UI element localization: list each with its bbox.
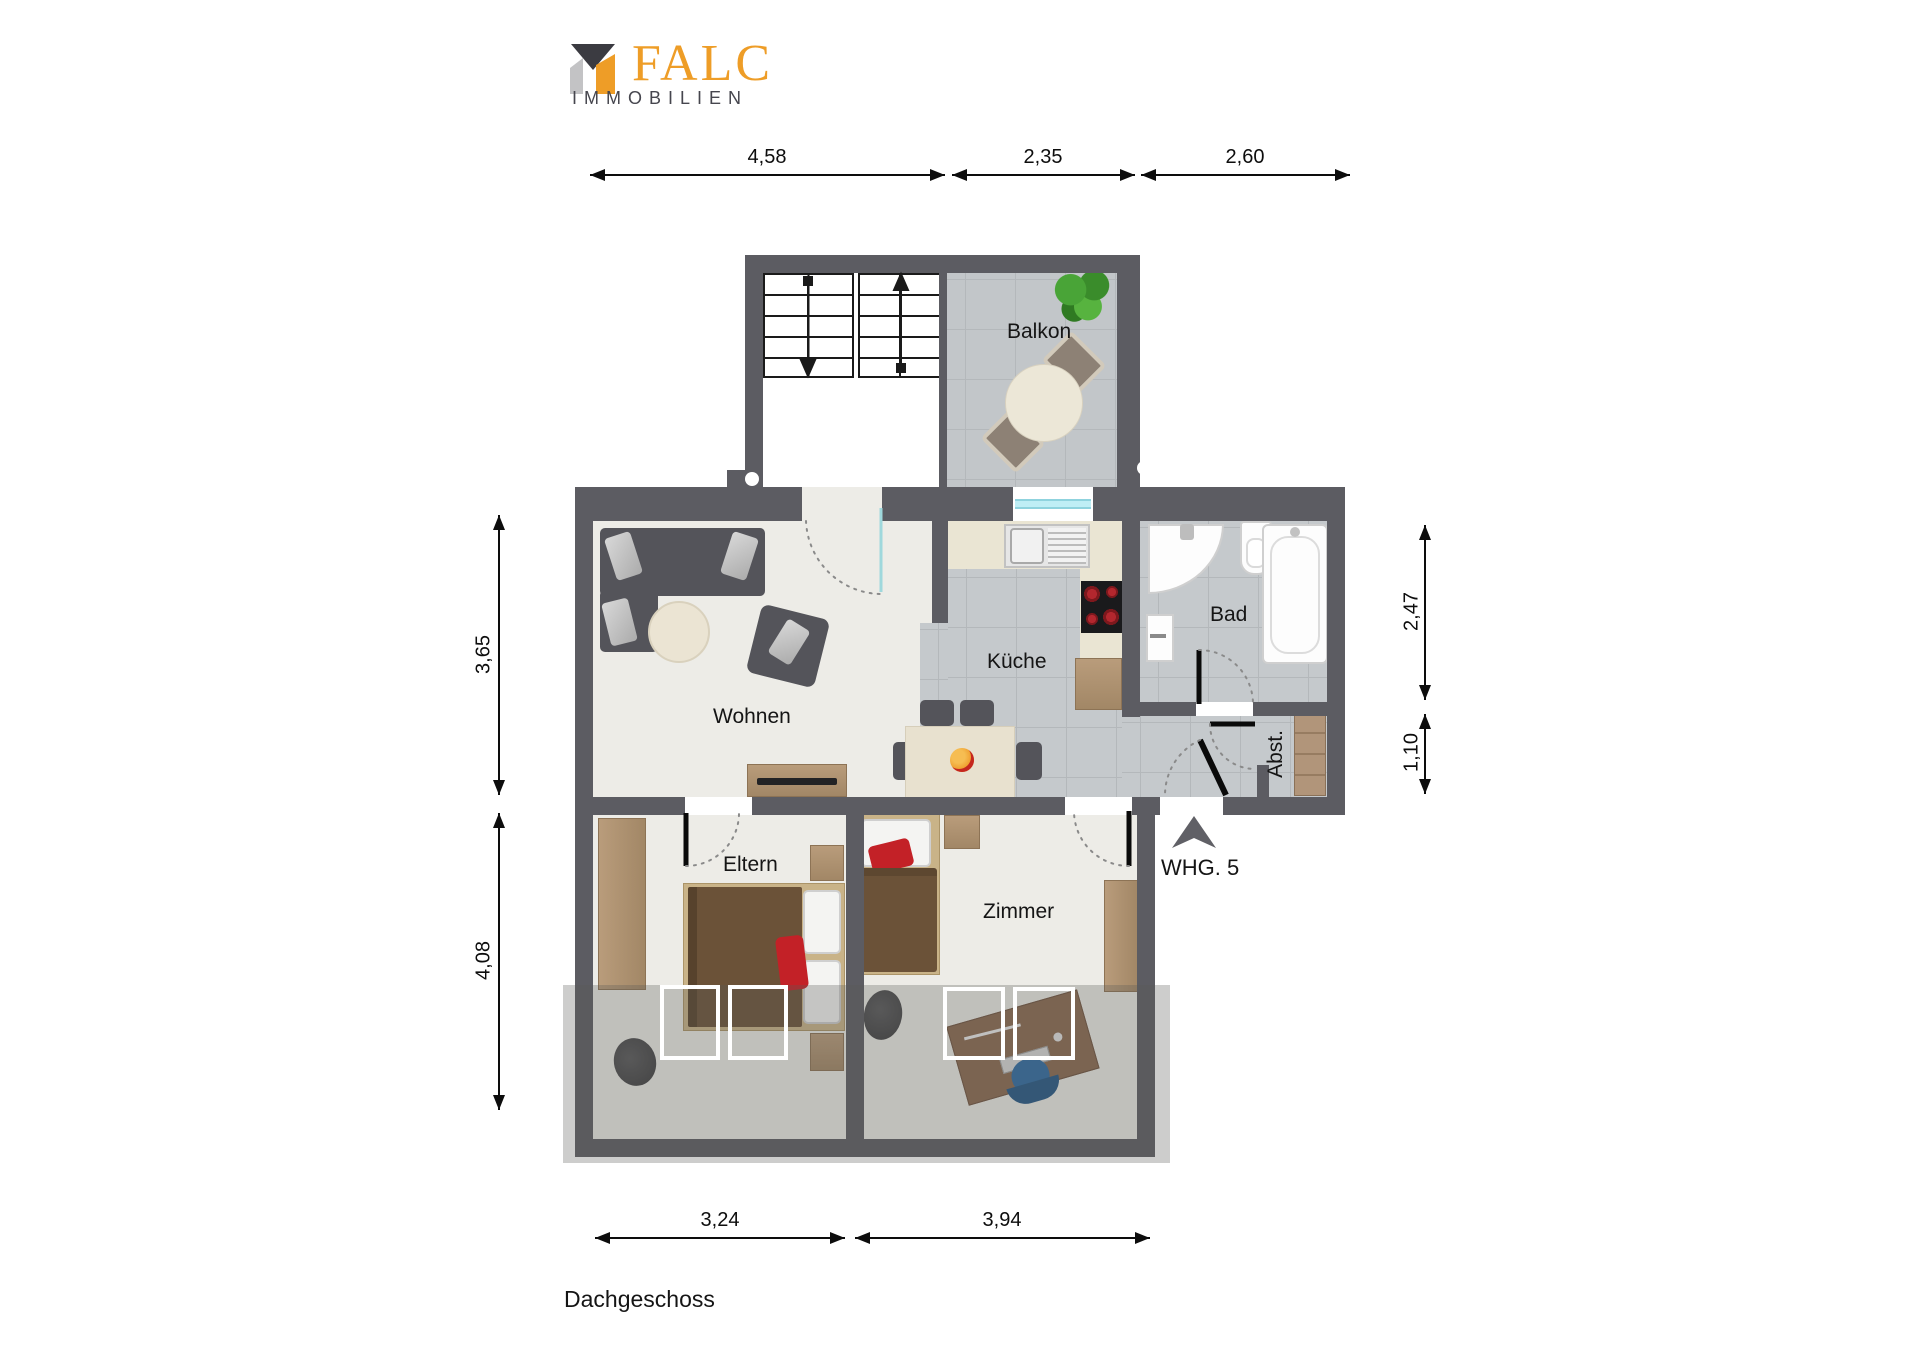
fruit-bowl: [950, 748, 974, 772]
wall-main-top-b: [882, 487, 1013, 521]
wall-balcony-right: [1117, 255, 1140, 487]
dim-left-1-label: 3,65: [473, 615, 496, 695]
dim-left-1: [498, 515, 500, 795]
dim-top-1: [590, 174, 945, 176]
dim-bottom-2: [855, 1237, 1150, 1239]
wall-top-block: [745, 255, 1140, 273]
dim-bottom-2-label: 3,94: [962, 1209, 1042, 1232]
zimmer-wardrobe: [1104, 880, 1138, 992]
bad-corner-sink-faucet: [1180, 524, 1194, 540]
roof-window-eltern-1: [660, 985, 720, 1060]
eltern-wardrobe: [598, 818, 646, 990]
hinge-circle-stair: [745, 472, 759, 486]
dim-top-2: [952, 174, 1135, 176]
dim-top-3-label: 2,60: [1205, 146, 1285, 169]
bathtub-inner: [1270, 536, 1320, 654]
room-label-kueche: Küche: [987, 650, 1047, 674]
hinge-circle-balcony: [1137, 461, 1151, 475]
room-label-eltern: Eltern: [723, 853, 778, 877]
room-label-balkon: Balkon: [1007, 320, 1071, 344]
dim-left-2: [498, 813, 500, 1110]
balcony-window-glass: [1015, 499, 1091, 509]
wall-bad-bottom-b: [1253, 702, 1327, 716]
room-label-abst: Abst.: [1264, 730, 1288, 778]
wall-main-top-c: [1093, 487, 1345, 521]
entrance-label: WHG. 5: [1161, 855, 1239, 881]
dim-bottom-1-label: 3,24: [680, 1209, 760, 1232]
roof-slope-overlay: [563, 985, 1170, 1163]
wall-mid-a: [575, 797, 685, 815]
wall-main-right-upper: [1327, 487, 1345, 815]
eltern-nightstand-top: [810, 845, 844, 881]
dim-right-1: [1424, 525, 1426, 700]
roof-window-zimmer-2: [1013, 987, 1075, 1060]
wall-wohnen-kueche-stub: [932, 521, 948, 623]
floor-title: Dachgeschoss: [564, 1286, 715, 1313]
roof-window-zimmer-1: [943, 987, 1005, 1060]
wall-mid-d: [1223, 797, 1345, 815]
wall-kueche-bad: [1122, 521, 1140, 717]
dim-left-2-label: 4,08: [473, 921, 496, 1001]
entrance-arrow-icon: [1172, 816, 1216, 848]
eltern-bed-pillow-1: [803, 890, 841, 954]
bathtub-faucet: [1290, 527, 1300, 537]
bad-washbasin: [1146, 614, 1174, 662]
dim-top-3: [1141, 174, 1350, 176]
dim-right-1-label: 2,47: [1401, 572, 1424, 652]
zimmer-bed-blanket: [856, 868, 937, 972]
brand-name: FALC: [632, 34, 773, 93]
dim-top-2-label: 2,35: [1003, 146, 1083, 169]
dining-chair-right: [1016, 742, 1042, 780]
stair-landing-floor: [763, 378, 939, 487]
balcony-table: [1005, 364, 1083, 442]
roof-window-eltern-2: [728, 985, 788, 1060]
dining-chair-top-1: [920, 700, 954, 726]
abst-shelf: [1294, 712, 1326, 796]
kitchen-sink-drainer: [1048, 528, 1086, 564]
room-label-bad: Bad: [1210, 603, 1247, 627]
wall-mid-b: [752, 797, 1065, 815]
dining-chair-top-2: [960, 700, 994, 726]
zimmer-nightstand: [944, 815, 980, 849]
wall-main-top-a: [575, 487, 802, 521]
wall-stair-left: [745, 255, 763, 487]
balcony-window: [1013, 487, 1093, 521]
dim-right-2: [1424, 714, 1426, 794]
stair-flight-right: [858, 273, 942, 378]
wohnen-door-gap: [802, 487, 882, 521]
wall-stair-balcony-divider: [939, 273, 947, 487]
tv: [757, 778, 837, 785]
coffee-table: [648, 601, 710, 663]
bad-washbasin-faucet: [1150, 634, 1166, 638]
stove: [1081, 581, 1123, 633]
brand-logo: FALC IMMOBILIEN: [570, 40, 870, 110]
dim-bottom-1: [595, 1237, 845, 1239]
wall-bad-bottom-a: [1140, 702, 1196, 716]
kitchen-cabinet: [1075, 658, 1122, 710]
kitchen-sink-basin: [1010, 528, 1044, 564]
stair-flight-left: [763, 273, 854, 378]
dim-top-1-label: 4,58: [727, 146, 807, 169]
brand-subtitle: IMMOBILIEN: [572, 88, 748, 109]
floorplan-page: FALC IMMOBILIEN 4,58 2,35 2,60 3,65 4,08…: [0, 0, 1920, 1357]
zimmer-bed: [853, 813, 940, 975]
room-label-wohnen: Wohnen: [713, 705, 791, 729]
dim-right-2-label: 1,10: [1401, 713, 1424, 793]
room-label-zimmer: Zimmer: [983, 900, 1054, 924]
